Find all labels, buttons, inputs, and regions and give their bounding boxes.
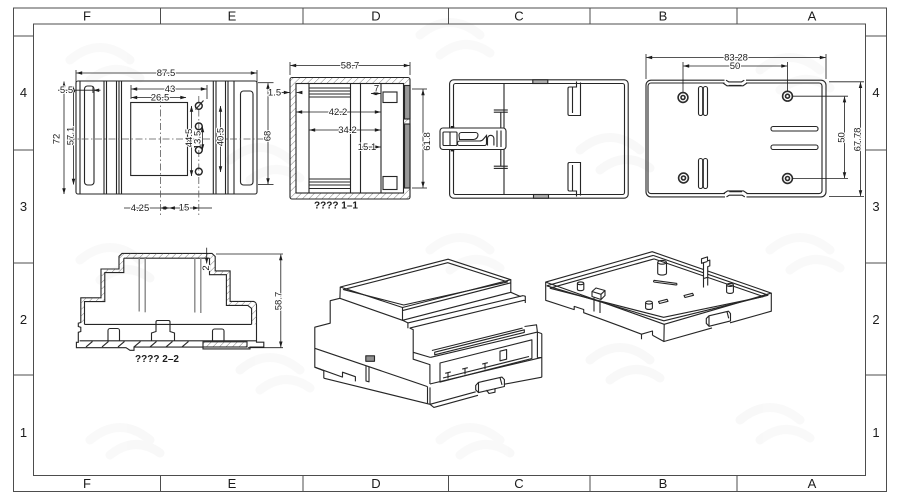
svg-text:40.5: 40.5 (215, 128, 226, 147)
svg-text:C: C (514, 476, 523, 491)
svg-text:4: 4 (20, 85, 27, 100)
svg-text:???? 2–2: ???? 2–2 (135, 354, 179, 365)
svg-text:3: 3 (20, 199, 27, 214)
svg-text:58.7: 58.7 (273, 292, 284, 311)
svg-text:C: C (514, 9, 523, 24)
svg-text:61.8: 61.8 (422, 132, 433, 151)
svg-text:34.2: 34.2 (338, 125, 357, 136)
svg-text:26.5: 26.5 (151, 92, 170, 103)
svg-text:58.7: 58.7 (341, 60, 360, 71)
svg-text:4.25: 4.25 (131, 203, 150, 214)
svg-text:B: B (659, 476, 668, 491)
svg-text:67.78: 67.78 (853, 128, 864, 152)
svg-text:2: 2 (20, 312, 27, 327)
svg-text:50: 50 (730, 61, 741, 72)
svg-text:3: 3 (872, 199, 879, 214)
svg-text:5.5: 5.5 (60, 85, 73, 96)
svg-text:50: 50 (837, 132, 848, 143)
svg-text:2: 2 (201, 265, 212, 270)
svg-text:87.5: 87.5 (157, 68, 176, 79)
svg-text:1: 1 (872, 425, 879, 440)
svg-text:7: 7 (374, 84, 379, 95)
svg-text:F: F (83, 476, 91, 491)
svg-text:72: 72 (52, 134, 63, 145)
svg-text:15.1: 15.1 (358, 142, 377, 153)
svg-text:4: 4 (872, 85, 879, 100)
svg-text:E: E (228, 9, 237, 24)
svg-text:D: D (371, 476, 380, 491)
svg-text:2: 2 (872, 312, 879, 327)
svg-text:F: F (83, 9, 91, 24)
svg-text:B: B (659, 9, 668, 24)
svg-text:68: 68 (262, 131, 273, 142)
svg-text:D: D (371, 9, 380, 24)
svg-text:E: E (228, 476, 237, 491)
svg-text:1.5: 1.5 (268, 88, 281, 99)
svg-text:A: A (808, 476, 817, 491)
svg-text:1: 1 (20, 425, 27, 440)
svg-text:57.1: 57.1 (65, 127, 76, 146)
svg-text:???? 1–1: ???? 1–1 (314, 201, 358, 212)
svg-text:42.2: 42.2 (329, 107, 348, 118)
svg-text:A: A (808, 9, 817, 24)
svg-text:15: 15 (179, 203, 190, 214)
